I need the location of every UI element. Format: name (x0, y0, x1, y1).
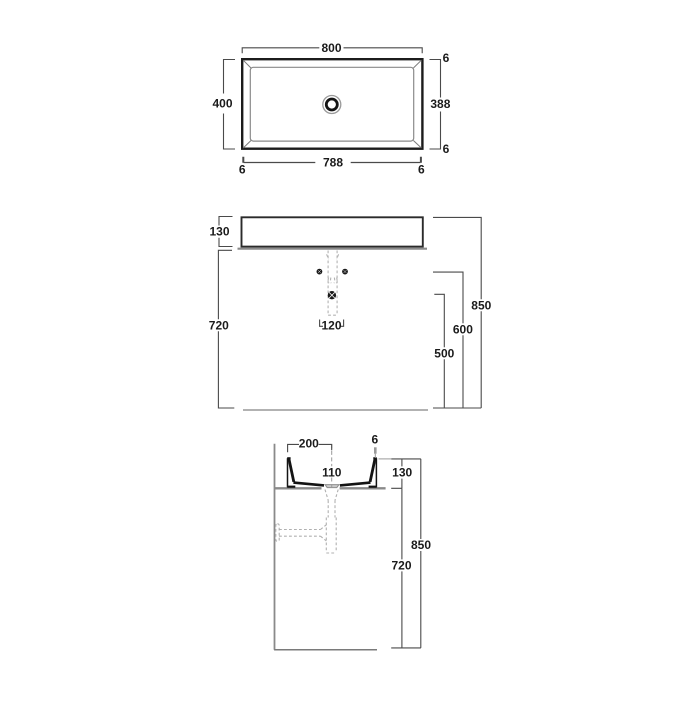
svg-text:600: 600 (453, 322, 473, 336)
svg-text:6: 6 (418, 162, 425, 176)
svg-text:6: 6 (371, 432, 378, 446)
svg-text:720: 720 (209, 318, 229, 332)
svg-text:6: 6 (443, 142, 450, 156)
svg-text:110: 110 (322, 465, 342, 479)
svg-text:130: 130 (209, 225, 229, 239)
svg-text:850: 850 (411, 538, 431, 552)
svg-text:388: 388 (430, 97, 450, 111)
svg-text:6: 6 (239, 162, 246, 176)
svg-text:500: 500 (434, 346, 454, 360)
svg-text:720: 720 (391, 559, 411, 573)
svg-text:130: 130 (392, 466, 412, 480)
svg-text:120: 120 (321, 319, 341, 333)
svg-text:788: 788 (323, 156, 343, 170)
svg-text:200: 200 (299, 437, 319, 451)
svg-text:850: 850 (471, 298, 491, 312)
svg-text:400: 400 (212, 97, 232, 111)
svg-text:800: 800 (321, 41, 341, 55)
svg-text:6: 6 (443, 51, 450, 65)
